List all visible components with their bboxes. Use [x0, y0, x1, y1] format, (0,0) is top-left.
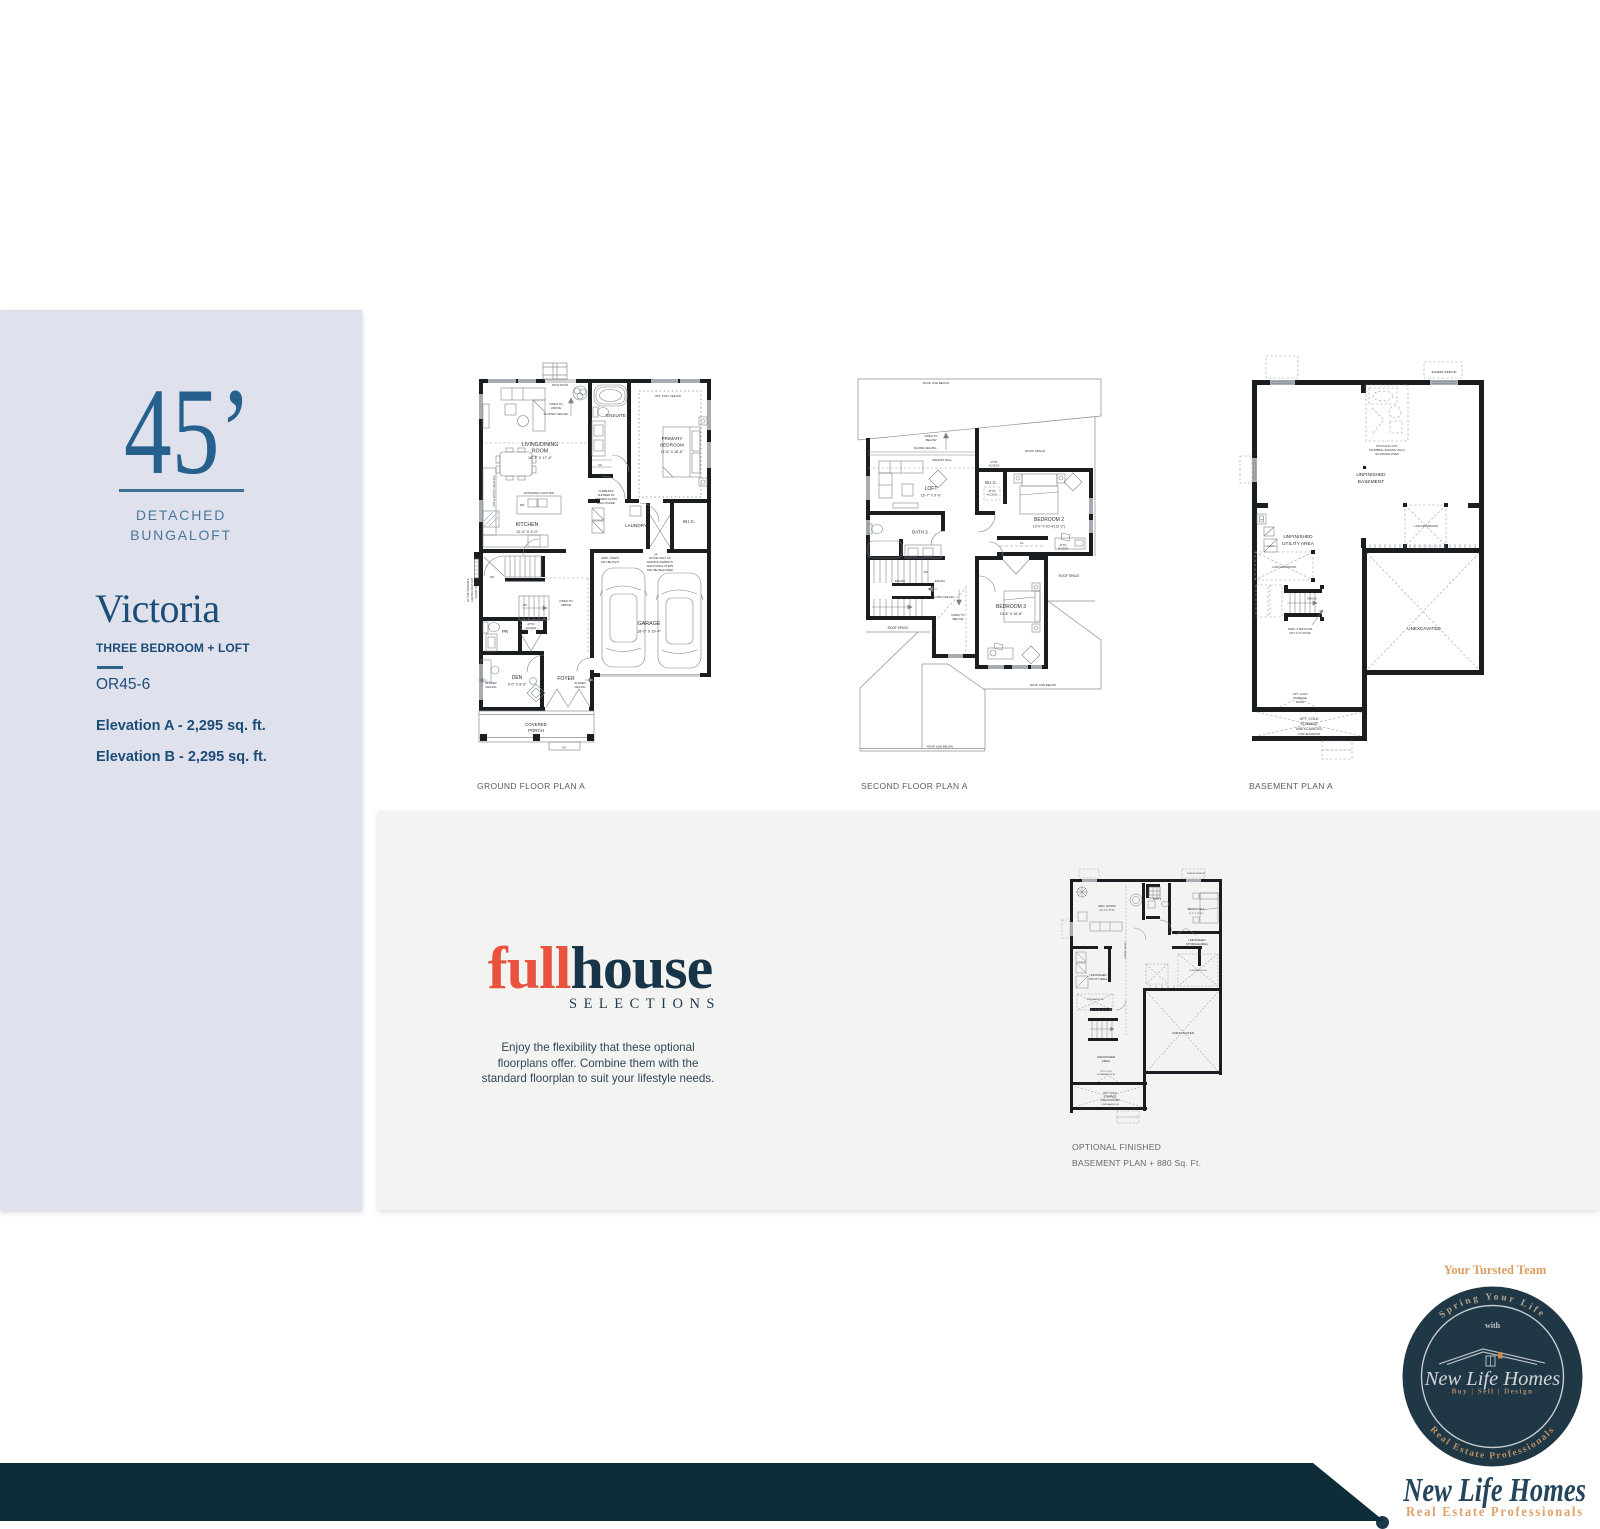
svg-text:ABOVE: ABOVE — [561, 603, 571, 607]
svg-text:STORAGE AREA: STORAGE AREA — [1186, 942, 1208, 946]
svg-text:LOW HEADROOM: LOW HEADROOM — [1087, 998, 1104, 1001]
svg-text:STORAGE DOOR: STORAGE DOOR — [1097, 1073, 1115, 1076]
svg-text:UP: UP — [523, 603, 527, 607]
svg-text:LOFT: LOFT — [925, 486, 938, 492]
svg-text:UP: UP — [654, 553, 658, 557]
svg-text:CEILING: CEILING — [485, 685, 496, 689]
svg-text:DN: DN — [924, 570, 928, 574]
svg-text:ROOF SPACE: ROOF SPACE — [888, 626, 909, 630]
svg-text:GARAGE: GARAGE — [637, 621, 660, 627]
svg-text:OPT. COLD: OPT. COLD — [1100, 1071, 1112, 1073]
svg-text:OPT. 9'-0" POUR: OPT. 9'-0" POUR — [1289, 631, 1310, 635]
svg-text:OPT. TRAY CEILING: OPT. TRAY CEILING — [655, 394, 681, 398]
svg-text:UNEXCAVATED: UNEXCAVATED — [1101, 1098, 1120, 1102]
svg-text:BEDROOM: BEDROOM — [660, 443, 684, 448]
svg-text:UNFINISHED: UNFINISHED — [1283, 534, 1313, 540]
svg-text:ROOF LINE BELOW: ROOF LINE BELOW — [927, 745, 953, 749]
svg-text:UP: UP — [562, 746, 566, 750]
svg-text:STORAGE: STORAGE — [1104, 1095, 1117, 1099]
svg-text:UNEXCAVATED: UNEXCAVATED — [1296, 727, 1323, 731]
svg-text:PATIO DOOR: PATIO DOOR — [552, 383, 568, 387]
svg-text:ACCESS: ACCESS — [1058, 548, 1069, 551]
svg-text:16'-7" X 9'-0": 16'-7" X 9'-0" — [921, 494, 942, 498]
svg-text:ROOF SPACE: ROOF SPACE — [1025, 449, 1044, 453]
svg-text:COVERED: COVERED — [525, 722, 547, 727]
svg-text:ABOVE: ABOVE — [551, 406, 561, 410]
svg-text:STORAGE: STORAGE — [1300, 722, 1318, 726]
svg-text:PR: PR — [502, 629, 508, 634]
svg-text:LOW HEADROOM: LOW HEADROOM — [1414, 524, 1438, 528]
svg-text:ROOM: ROOM — [532, 449, 548, 455]
svg-text:FOYER: FOYER — [557, 676, 575, 682]
svg-text:13'-0" X 10'-4"(12'-2"): 13'-0" X 10'-4"(12'-2") — [1033, 525, 1065, 529]
svg-text:GRADING DOES NOT: GRADING DOES NOT — [471, 577, 474, 602]
svg-text:FURN: FURN — [1267, 546, 1273, 548]
svg-text:LAUNDRY: LAUNDRY — [625, 523, 647, 528]
svg-text:REC. ROOM: REC. ROOM — [1098, 904, 1116, 908]
svg-text:CL.: CL. — [1020, 541, 1025, 545]
svg-text:ACCESS: ACCESS — [987, 493, 998, 497]
svg-text:BEDROOM 4: BEDROOM 4 — [1188, 907, 1205, 911]
svg-text:W.I.C.: W.I.C. — [683, 519, 696, 524]
svg-text:ATTIC: ATTIC — [990, 460, 997, 464]
svg-text:12'-0" X 9'-0": 12'-0" X 9'-0" — [516, 530, 539, 534]
svg-text:KITCHEN: KITCHEN — [516, 522, 539, 528]
svg-text:LIVING/DINING: LIVING/DINING — [522, 442, 559, 448]
svg-text:Buy | Sell | Design: Buy | Sell | Design — [1452, 1388, 1534, 1396]
svg-text:BEDROOM 3: BEDROOM 3 — [996, 604, 1026, 610]
svg-text:10'-8" X 16'-8": 10'-8" X 16'-8" — [1000, 612, 1023, 616]
svg-text:PERMIT DOOR: PERMIT DOOR — [475, 581, 478, 598]
svg-text:UTILITY AREA: UTILITY AREA — [1089, 977, 1108, 981]
svg-text:17'-1" X 17'-9": 17'-1" X 17'-9" — [1099, 909, 1114, 912]
svg-text:PORCH: PORCH — [528, 728, 544, 733]
svg-text:OPT. COLD: OPT. COLD — [1300, 717, 1319, 721]
svg-text:MAY BE RQ'D: MAY BE RQ'D — [601, 560, 619, 564]
svg-text:OPT. COLD: OPT. COLD — [1103, 1091, 1117, 1095]
svg-text:SLOPE CEILING: SLOPE CEILING — [932, 595, 956, 599]
svg-text:ACCESS: ACCESS — [989, 464, 1000, 468]
svg-text:DOOR: DOOR — [1296, 700, 1304, 704]
svg-text:EXTENDED COUNTER: EXTENDED COUNTER — [524, 491, 554, 495]
svg-text:BELOW: BELOW — [953, 617, 964, 621]
svg-text:CEILING: CEILING — [574, 685, 585, 689]
svg-text:11'-2" X 11'-10": 11'-2" X 11'-10" — [1189, 913, 1204, 915]
svg-text:32" X 80" WINDOW IF: 32" X 80" WINDOW IF — [467, 578, 470, 602]
svg-text:BASEMENT: BASEMENT — [1358, 479, 1384, 485]
svg-text:UNFINISHED: UNFINISHED — [1356, 472, 1386, 478]
svg-text:with: with — [1485, 1321, 1501, 1330]
svg-text:UNEXCAVATED: UNEXCAVATED — [1172, 1031, 1195, 1035]
svg-text:BATH 2: BATH 2 — [912, 530, 928, 535]
svg-text:MAY BE REQUIRED: MAY BE REQUIRED — [647, 568, 673, 572]
svg-text:EGRESS WINDOW: EGRESS WINDOW — [1187, 873, 1205, 875]
svg-text:DN: DN — [490, 575, 494, 579]
svg-text:ATTIC: ATTIC — [988, 489, 995, 493]
svg-text:EGRESS WINDOW: EGRESS WINDOW — [1432, 370, 1457, 374]
svg-text:SH: SH — [598, 463, 602, 467]
svg-text:RAILING: RAILING — [895, 579, 905, 583]
svg-text:BELOW: BELOW — [926, 438, 937, 442]
svg-text:LOW HEADROOM: LOW HEADROOM — [1272, 565, 1296, 569]
svg-text:DEN: DEN — [512, 675, 523, 681]
svg-text:UTILITY AREA: UTILITY AREA — [1282, 541, 1315, 547]
svg-text:W.I.C.: W.I.C. — [985, 480, 997, 485]
svg-text:RAILING: RAILING — [935, 579, 945, 583]
svg-text:ENCLOSURE: ENCLOSURE — [597, 501, 615, 505]
svg-text:ATTIC: ATTIC — [527, 622, 534, 626]
svg-text:LOW HEADROOM: LOW HEADROOM — [1298, 732, 1320, 736]
svg-text:ROOF LINE BELOW: ROOF LINE BELOW — [923, 381, 949, 385]
svg-text:PRIMARY: PRIMARY — [662, 436, 683, 441]
svg-text:LOW HEADROOM: LOW HEADROOM — [1102, 1103, 1119, 1106]
svg-text:SLOPED CEILING: SLOPED CEILING — [543, 412, 569, 416]
svg-text:16'-7" X 17'-4": 16'-7" X 17'-4" — [528, 456, 553, 460]
svg-text:OPT ELECTRIC FIREPLACE: OPT ELECTRIC FIREPLACE — [493, 475, 496, 507]
svg-text:NO WATER LINES: NO WATER LINES — [1375, 452, 1399, 456]
svg-text:ROOF LINE BELOW: ROOF LINE BELOW — [1030, 683, 1056, 687]
svg-text:DW: DW — [520, 503, 525, 507]
svg-text:BATH 3: BATH 3 — [1153, 898, 1162, 901]
svg-text:SLOPED CEILING: SLOPED CEILING — [1125, 941, 1127, 958]
svg-text:ROOF SPACE: ROOF SPACE — [1059, 574, 1080, 578]
svg-text:ACCESS: ACCESS — [526, 626, 537, 630]
svg-text:SLOPE CEILING: SLOPE CEILING — [914, 446, 938, 450]
svg-text:11'-6" X 18'-6": 11'-6" X 18'-6" — [661, 450, 684, 454]
svg-text:ENSUITE: ENSUITE — [606, 413, 626, 418]
svg-text:RAILING: RAILING — [1307, 598, 1317, 601]
svg-text:UNEXCAVATED: UNEXCAVATED — [1407, 626, 1441, 631]
svg-text:BEDROOM 2: BEDROOM 2 — [1034, 517, 1064, 523]
svg-text:AREA: AREA — [1102, 1059, 1110, 1063]
svg-text:PARAPET WALL: PARAPET WALL — [932, 458, 952, 462]
svg-text:9'-0" X 8'-0": 9'-0" X 8'-0" — [508, 683, 527, 687]
svg-text:LOW HEADROOM: LOW HEADROOM — [1190, 969, 1207, 972]
svg-text:18'-0" X 19'-4": 18'-0" X 19'-4" — [637, 630, 662, 634]
